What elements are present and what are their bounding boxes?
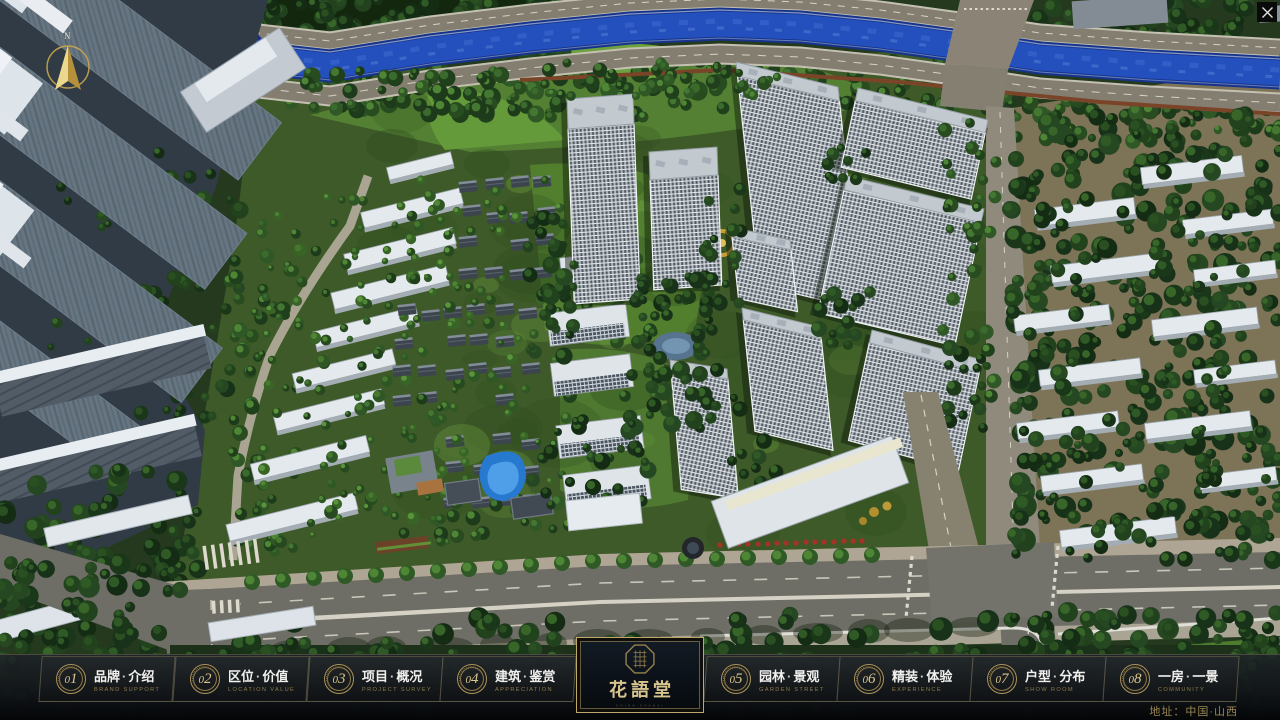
svg-text:N: N: [64, 31, 71, 41]
